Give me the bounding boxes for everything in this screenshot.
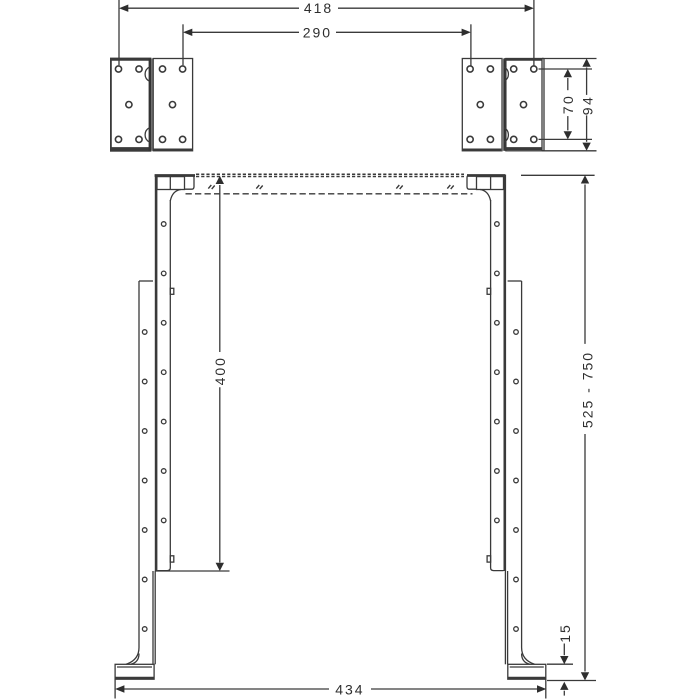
svg-text:418: 418	[304, 0, 333, 16]
svg-text:15: 15	[557, 623, 573, 643]
svg-text:70: 70	[560, 94, 576, 115]
svg-text:525 - 750: 525 - 750	[579, 351, 595, 428]
svg-text:434: 434	[335, 682, 364, 698]
svg-text:290: 290	[303, 24, 332, 40]
svg-text:400: 400	[212, 356, 228, 385]
svg-text:94: 94	[580, 95, 596, 116]
